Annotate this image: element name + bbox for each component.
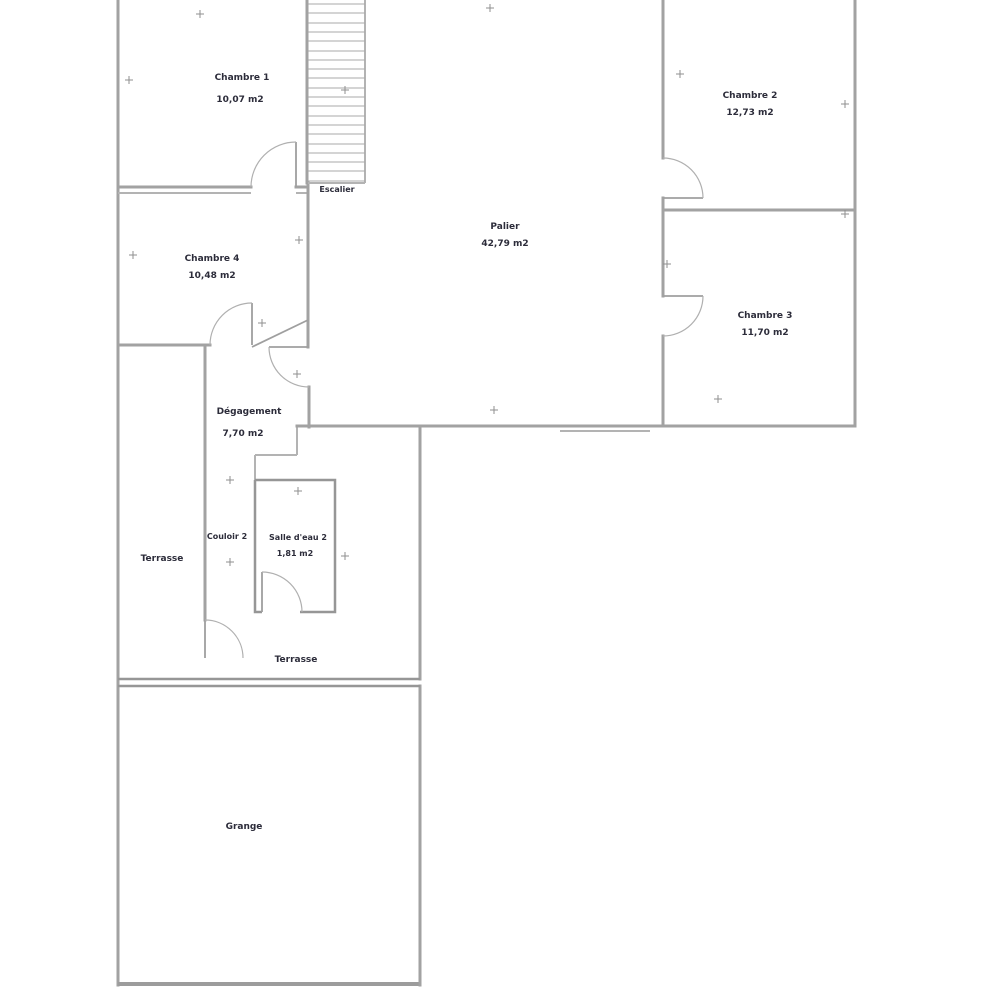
room-label-palier: Palier (490, 222, 520, 232)
room-area-chambre3: 11,70 m2 (741, 328, 788, 338)
floor-plan: Chambre 1 10,07 m2 Escalier Palier 42,79… (0, 0, 1000, 1000)
floor-plan-drawing: Chambre 1 10,07 m2 Escalier Palier 42,79… (0, 0, 1000, 1000)
room-area-chambre1: 10,07 m2 (216, 95, 263, 105)
room-label-terrasse-left: Terrasse (141, 554, 184, 564)
measurement-cross-marks (125, 4, 849, 566)
room-label-couloir: Couloir 2 (207, 532, 247, 541)
room-label-chambre2: Chambre 2 (723, 91, 778, 101)
outer-walls (118, 0, 855, 985)
room-label-escalier: Escalier (319, 185, 354, 194)
room-label-grange: Grange (226, 822, 263, 832)
room-area-palier: 42,79 m2 (481, 239, 528, 249)
room-area-chambre4: 10,48 m2 (188, 271, 235, 281)
room-label-chambre4: Chambre 4 (185, 254, 240, 264)
stairs (308, 0, 365, 183)
room-label-chambre1: Chambre 1 (215, 73, 270, 83)
room-label-chambre3: Chambre 3 (738, 311, 793, 321)
room-label-terrasse-mid: Terrasse (275, 655, 318, 665)
room-label-salle-eau: Salle d'eau 2 (269, 533, 327, 542)
room-area-salle-eau: 1,81 m2 (277, 549, 313, 558)
door-symbols (205, 142, 703, 658)
room-area-chambre2: 12,73 m2 (726, 108, 773, 118)
room-label-degagement: Dégagement (217, 406, 283, 417)
room-area-degagement: 7,70 m2 (223, 429, 264, 439)
